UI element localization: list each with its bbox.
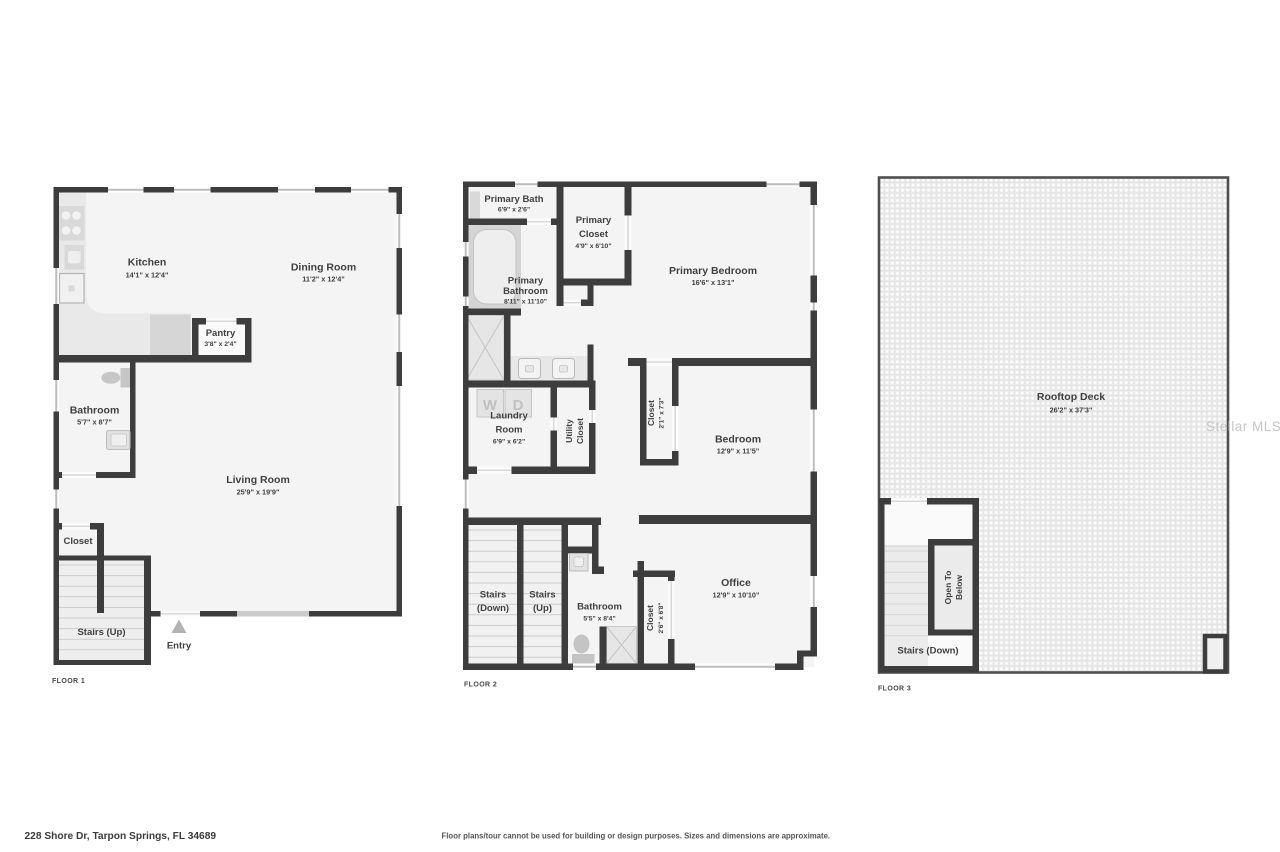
svg-text:Entry: Entry xyxy=(167,641,192,652)
svg-text:Primary: Primary xyxy=(508,276,544,287)
svg-text:(Down): (Down) xyxy=(477,603,509,614)
svg-text:25'9" x 19'9": 25'9" x 19'9" xyxy=(237,488,280,497)
svg-text:Office: Office xyxy=(721,577,751,589)
svg-text:Bathroom: Bathroom xyxy=(577,602,622,613)
svg-text:Floor plans/tour cannot be use: Floor plans/tour cannot be used for buil… xyxy=(442,832,831,841)
svg-text:3'8" x 2'4": 3'8" x 2'4" xyxy=(204,341,236,348)
svg-text:228 Shore Dr, Tarpon Springs,: 228 Shore Dr, Tarpon Springs, FL 34689 xyxy=(25,831,217,842)
svg-text:2'6" x 6'8": 2'6" x 6'8" xyxy=(658,603,665,634)
svg-text:12'9" x 11'5": 12'9" x 11'5" xyxy=(717,447,759,456)
svg-text:11'2" x 12'4": 11'2" x 12'4" xyxy=(302,275,344,284)
svg-text:Below: Below xyxy=(954,575,964,600)
svg-text:FLOOR 2: FLOOR 2 xyxy=(464,682,497,689)
svg-text:Closet: Closet xyxy=(645,605,655,631)
svg-text:Laundry: Laundry xyxy=(490,411,528,422)
svg-text:(Up): (Up) xyxy=(533,603,552,614)
svg-text:6'9" x 2'6": 6'9" x 2'6" xyxy=(498,207,530,214)
svg-text:Kitchen: Kitchen xyxy=(128,257,167,269)
svg-text:Bathroom: Bathroom xyxy=(503,286,548,297)
svg-text:Stellar MLS: Stellar MLS xyxy=(1206,419,1280,434)
svg-text:Stairs (Up): Stairs (Up) xyxy=(77,627,125,638)
svg-text:Utility: Utility xyxy=(564,419,574,443)
svg-text:Room: Room xyxy=(496,425,523,436)
svg-text:Stairs: Stairs xyxy=(480,590,506,601)
svg-text:Stairs: Stairs xyxy=(529,590,555,601)
svg-text:Dining Room: Dining Room xyxy=(291,262,356,274)
svg-text:5'5" x 8'4": 5'5" x 8'4" xyxy=(583,616,615,623)
svg-text:Pantry: Pantry xyxy=(206,328,236,339)
svg-text:12'9" x 10'10": 12'9" x 10'10" xyxy=(713,591,760,600)
svg-text:2'1" x 7'3": 2'1" x 7'3" xyxy=(658,398,665,429)
svg-text:Primary: Primary xyxy=(576,215,612,226)
svg-text:Stairs (Down): Stairs (Down) xyxy=(897,646,958,657)
svg-text:14'1" x 12'4": 14'1" x 12'4" xyxy=(126,271,169,280)
svg-text:Living Room: Living Room xyxy=(226,474,290,486)
svg-text:Bedroom: Bedroom xyxy=(715,434,761,446)
svg-text:Bathroom: Bathroom xyxy=(70,405,120,417)
svg-text:5'7" x 8'7": 5'7" x 8'7" xyxy=(77,418,112,427)
svg-text:4'9" x 6'10": 4'9" x 6'10" xyxy=(575,243,611,250)
svg-text:Rooftop Deck: Rooftop Deck xyxy=(1037,391,1105,403)
svg-text:FLOOR 1: FLOOR 1 xyxy=(52,678,85,685)
svg-text:Closet: Closet xyxy=(579,229,609,240)
svg-text:Open To: Open To xyxy=(943,571,953,605)
svg-text:Primary Bath: Primary Bath xyxy=(484,194,543,205)
svg-text:8'11" x 11'10": 8'11" x 11'10" xyxy=(504,299,547,306)
svg-text:6'9" x 6'2": 6'9" x 6'2" xyxy=(493,439,525,446)
svg-text:Closet: Closet xyxy=(575,418,585,444)
svg-text:Closet: Closet xyxy=(646,400,656,426)
svg-text:Closet: Closet xyxy=(63,536,93,547)
svg-text:Primary Bedroom: Primary Bedroom xyxy=(669,265,757,277)
svg-text:FLOOR 3: FLOOR 3 xyxy=(878,686,911,693)
svg-text:16'6" x 13'1": 16'6" x 13'1" xyxy=(692,278,735,287)
svg-text:26'2" x 37'3": 26'2" x 37'3" xyxy=(1050,406,1093,415)
